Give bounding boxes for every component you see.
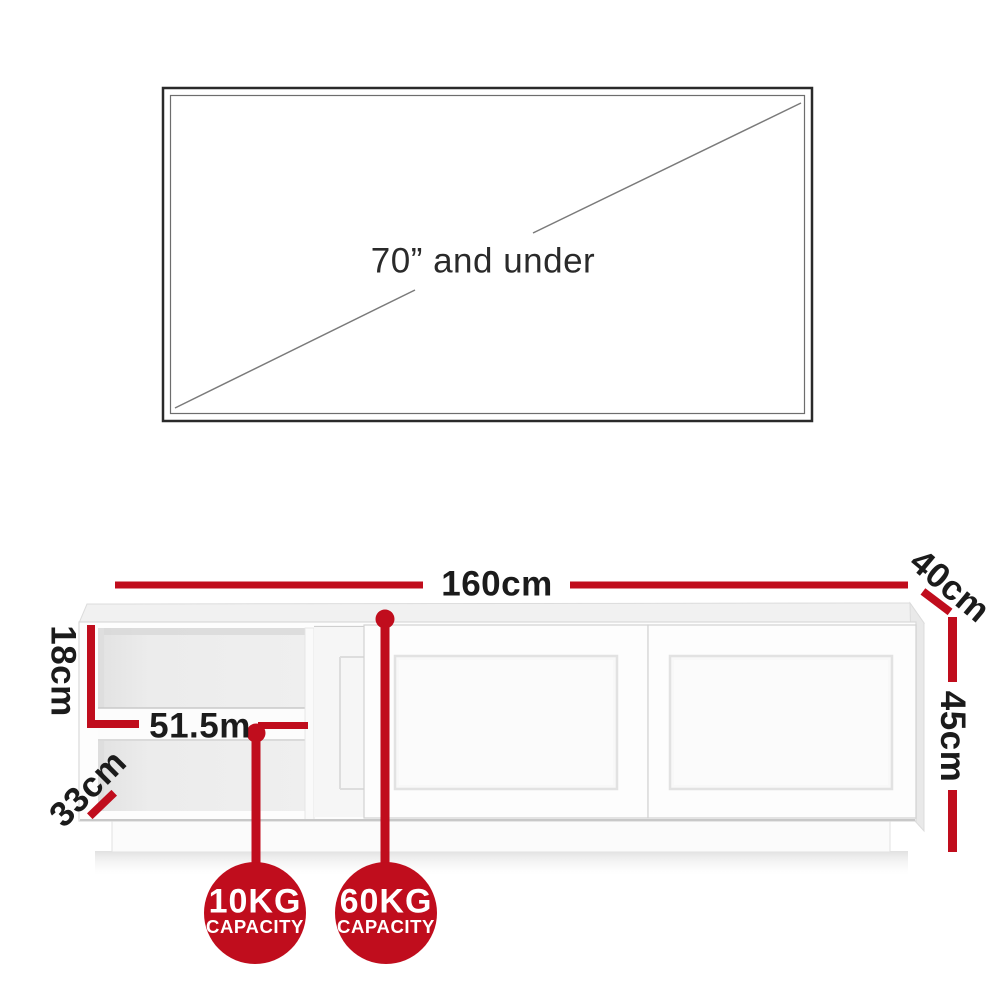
tv-diagram: 70” and under	[163, 88, 812, 421]
shelf-width-label: 51.5m	[149, 707, 251, 746]
top-capacity-weight: 60KG	[340, 883, 433, 921]
shelf-width-line	[258, 722, 308, 729]
height-dimension-line-bottom	[948, 790, 957, 852]
width-dimension-line-right	[570, 582, 908, 589]
width-label: 160cm	[441, 565, 552, 604]
floor-shadow	[95, 851, 908, 875]
shelf-height-line-vertical	[87, 625, 95, 728]
sliding-door-right-panel-inner	[674, 660, 888, 785]
shelf-height-line-foot	[87, 720, 139, 728]
shelf-capacity-weight: 10KG	[209, 883, 302, 921]
product-dimension-infographic: 70” and under	[0, 0, 1000, 1000]
height-dimension-line-top	[948, 617, 957, 682]
top-capacity-caption: CAPACITY	[337, 916, 435, 937]
shelf-capacity-stem	[252, 733, 261, 868]
tv-size-label: 70” and under	[371, 242, 595, 281]
height-label: 45cm	[933, 691, 972, 783]
shelf-capacity-caption: CAPACITY	[206, 916, 304, 937]
open-shelf-top-shadow	[98, 628, 305, 635]
shelf-height-label: 18cm	[44, 625, 83, 717]
top-capacity-stem	[381, 619, 390, 868]
sliding-door-left-panel-inner	[399, 660, 613, 785]
width-dimension-line-left	[115, 582, 423, 589]
capacity-badges: 10KG CAPACITY 60KG CAPACITY	[204, 862, 437, 964]
cabinet-plinth	[112, 820, 890, 852]
cabinet-top-face	[79, 603, 924, 623]
capacity-badge-text: 10KG CAPACITY 60KG CAPACITY	[206, 883, 435, 938]
infographic-canvas: 70” and under	[0, 0, 1000, 1000]
